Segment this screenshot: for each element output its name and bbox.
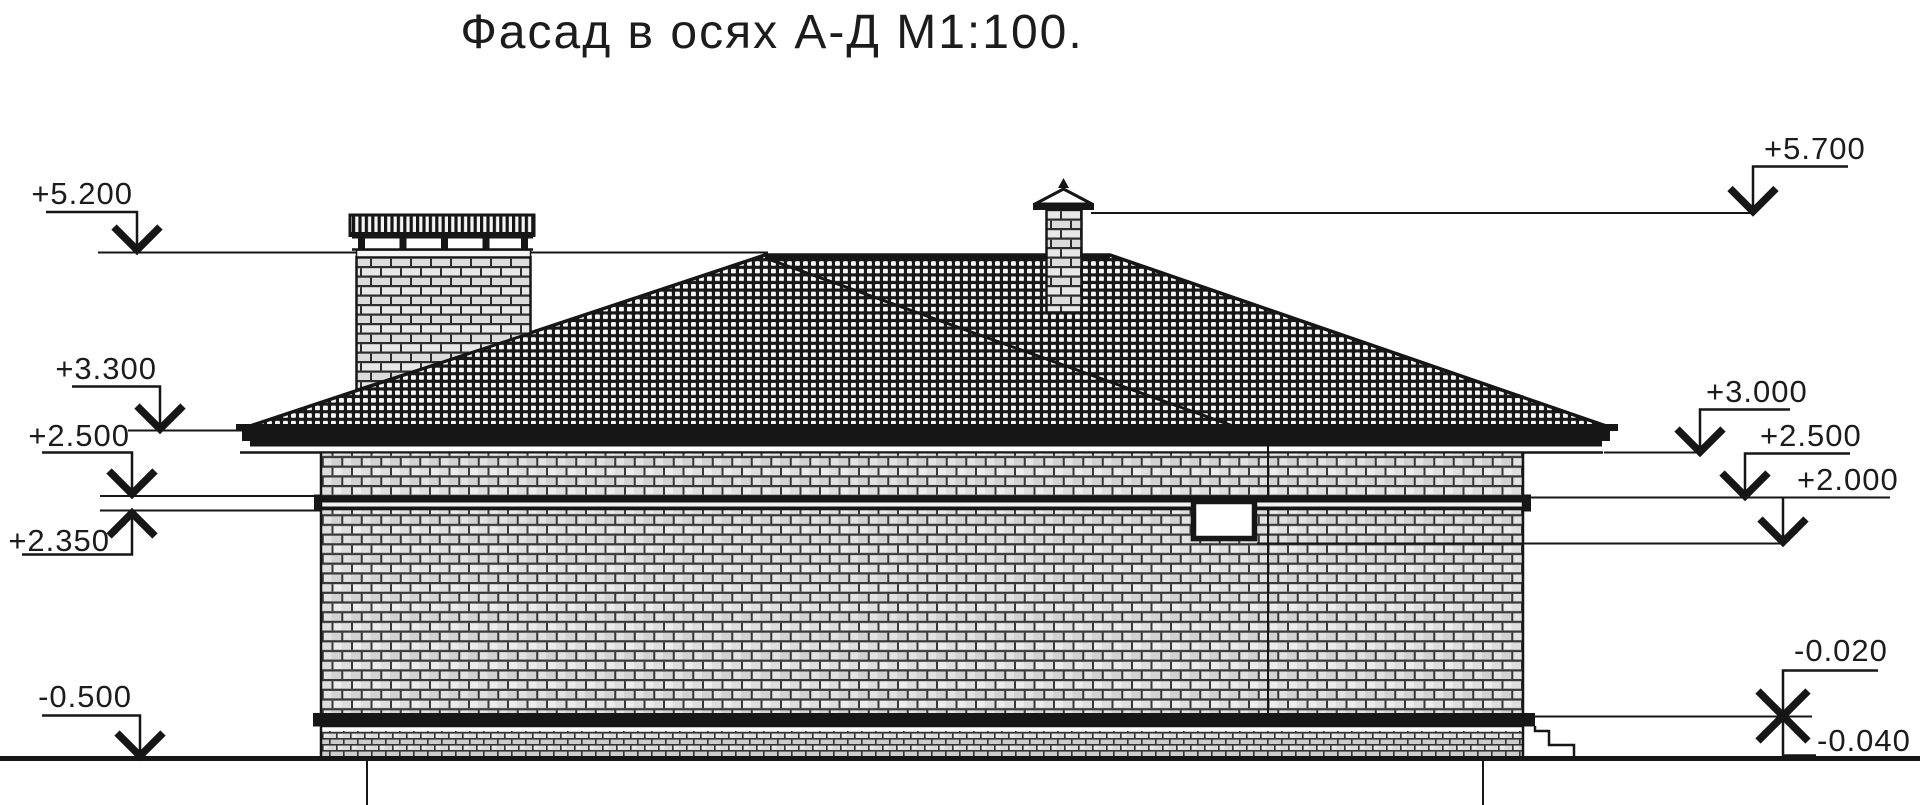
elevation-mark-label: -0.020 xyxy=(1794,633,1888,668)
elevation-mark-chimney-top: +5.700 xyxy=(1730,131,1866,212)
elevation-mark-label: +2.500 xyxy=(1760,418,1862,453)
fascia-step xyxy=(250,441,1602,447)
elevation-mark-ridge: +5.200 xyxy=(31,176,160,250)
fascia-band xyxy=(242,431,1610,441)
big-chimney-balustrade-posts xyxy=(358,239,528,250)
elevation-mark-belt-bottom: +2.350 xyxy=(8,511,317,559)
wall xyxy=(313,441,1574,758)
big-chimney-cornice-base xyxy=(350,232,534,236)
elevation-mark-label: +5.200 xyxy=(31,176,133,211)
small-chimney-hood xyxy=(1035,189,1092,204)
elevation-mark-label: +2.500 xyxy=(28,418,130,453)
wall-upper-band xyxy=(321,454,1523,497)
elevation-mark-label: +3.000 xyxy=(1706,374,1808,409)
small-chimney-hood-band xyxy=(1033,203,1094,210)
roof-edge-strip xyxy=(236,424,1618,431)
elevation-mark-label: +3.300 xyxy=(55,351,157,386)
elevation-mark-label: -0.500 xyxy=(38,679,132,714)
wall-main-field xyxy=(321,510,1523,713)
elevation-mark-ground: -0.500 xyxy=(38,679,163,756)
elevation-mark-blind-area: -0.040 xyxy=(1783,723,1911,758)
window xyxy=(1194,502,1255,539)
elevation-mark-label: +2.350 xyxy=(8,523,110,558)
eaves xyxy=(236,424,1618,453)
small-chimney-shaft xyxy=(1047,210,1082,313)
facade-canvas: Фасад в осях А-Д М1:100. xyxy=(0,0,1920,805)
entry-steps xyxy=(1535,726,1574,757)
big-chimney-neck xyxy=(357,250,531,257)
drawing-title: Фасад в осях А-Д М1:100. xyxy=(460,6,1083,59)
elevation-mark-label: -0.040 xyxy=(1817,723,1911,758)
elevation-mark-label: +2.000 xyxy=(1797,462,1899,497)
base-band xyxy=(313,713,1535,727)
ground xyxy=(0,759,1920,805)
belt-course xyxy=(314,495,1531,512)
elevation-mark-label: +5.700 xyxy=(1764,131,1866,166)
facade-drawing: Фасад в осях А-Д М1:100. xyxy=(0,0,1920,805)
small-chimney-finial xyxy=(1058,178,1069,188)
plinth xyxy=(321,731,1523,758)
